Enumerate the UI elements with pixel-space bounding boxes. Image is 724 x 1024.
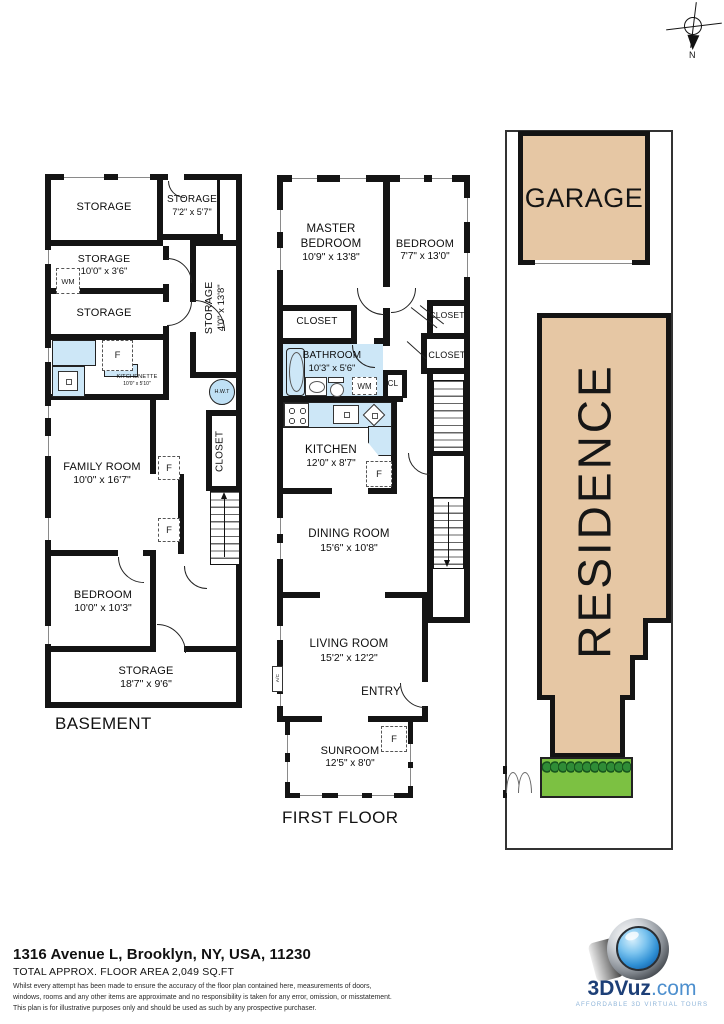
room-label: BATHROOM10'3" x 5'6" <box>287 350 377 375</box>
garage-footprint: GARAGE <box>518 131 650 265</box>
disclaimer-line: This plan is for illustrative purposes o… <box>13 1003 588 1014</box>
wall <box>402 370 407 398</box>
room-label: BEDROOM10'0" x 10'3" <box>50 588 156 616</box>
stair-down-arrow-icon <box>444 560 450 567</box>
compass-north-label: N <box>689 50 696 60</box>
stair-direction-line <box>448 502 449 562</box>
window <box>338 793 362 798</box>
room-label: CLOSET <box>427 310 467 321</box>
wall <box>464 175 470 623</box>
window <box>277 626 283 640</box>
water-heater-label: H.W.T <box>215 389 230 395</box>
brand-logo: 3DVuz.com AFFORDABLE 3D VIRTUAL TOURS <box>572 916 712 1012</box>
fixture-box: F <box>366 461 392 487</box>
wall <box>427 617 470 623</box>
stove <box>284 403 309 427</box>
wall <box>283 338 357 344</box>
sink-drain-icon <box>344 412 350 418</box>
floor-plan-page: N <box>0 0 724 1024</box>
disclaimer: Whilst every attempt has been made to en… <box>13 981 588 1015</box>
window <box>277 543 283 559</box>
wall <box>277 592 320 598</box>
wall <box>283 305 357 311</box>
window <box>277 518 283 534</box>
disclaimer-line: Whilst every attempt has been made to en… <box>13 981 588 992</box>
first-floor-title: FIRST FLOOR <box>282 808 399 828</box>
window <box>400 175 424 182</box>
fixture-label: F <box>391 734 397 745</box>
window <box>300 793 322 798</box>
residence-footprint: RESIDENCE <box>537 313 671 758</box>
window <box>45 626 51 644</box>
water-heater: H.W.T <box>209 379 235 405</box>
window <box>464 253 470 277</box>
room-label: BEDROOM7'7" x 13'0" <box>390 237 460 264</box>
kitchen-counter <box>368 426 392 456</box>
window <box>45 348 51 362</box>
room-label: STORAGE7'2" x 5'7" <box>162 194 222 218</box>
wall <box>433 452 470 456</box>
room-label: CLOSET <box>215 406 228 496</box>
wall <box>45 702 242 708</box>
wall <box>385 592 427 598</box>
window <box>464 198 470 222</box>
wall <box>427 300 470 306</box>
room-label: STORAGE <box>51 306 157 320</box>
wall <box>277 488 332 494</box>
wall <box>236 174 242 708</box>
kitchenette-counter <box>52 340 96 366</box>
stair-direction-line <box>224 499 225 557</box>
gate-post <box>503 766 507 774</box>
wall <box>190 372 242 378</box>
wall <box>184 646 242 652</box>
wall <box>351 305 357 344</box>
room-label: FAMILY ROOM10'0" x 16'7" <box>50 460 154 488</box>
room-label: DINING ROOM15'6" x 10'8" <box>300 527 398 555</box>
room-label: LIVING ROOM15'2" x 12'2" <box>301 637 397 665</box>
wall <box>368 716 427 722</box>
hedge-row-icon <box>542 759 631 776</box>
residence-label: RESIDENCE <box>537 321 653 701</box>
door-arc <box>168 164 202 198</box>
window <box>285 735 290 753</box>
room-label: CLOSET <box>283 316 351 329</box>
window <box>277 248 283 270</box>
wall <box>184 174 242 180</box>
basement-title: BASEMENT <box>55 714 152 734</box>
room-label: CL <box>384 379 402 389</box>
compass-rose: N <box>660 0 724 66</box>
sink-bowl-icon <box>309 381 325 393</box>
fixture-label: F <box>376 469 382 480</box>
compass-circle-icon <box>684 17 702 35</box>
fixture-box: F <box>158 518 180 542</box>
garage-label: GARAGE <box>525 183 644 214</box>
fixture-label: F <box>166 525 172 536</box>
fixture-label: F <box>166 463 172 474</box>
room-label: MASTER BEDROOM10'9" x 13'8" <box>292 222 370 265</box>
wall <box>190 246 196 302</box>
property-address: 1316 Avenue L, Brooklyn, NY, USA, 11230 <box>13 946 311 963</box>
brand-name: 3DVuz.com <box>572 977 712 1001</box>
room-label: CLOSET <box>425 350 469 362</box>
wall <box>178 474 184 554</box>
window <box>432 175 452 182</box>
window <box>45 406 51 418</box>
washer-label: WM <box>357 382 371 391</box>
sink-drain-icon <box>372 413 378 419</box>
wall <box>163 246 169 260</box>
window <box>64 174 104 180</box>
wall <box>383 175 390 287</box>
room-label: KITCHENETTE10'0" x 5'10" <box>108 374 166 388</box>
window <box>408 768 413 786</box>
wall <box>383 308 390 346</box>
room-label: ENTRY <box>358 685 404 700</box>
disclaimer-line: windows, rooms and any other items are a… <box>13 992 588 1003</box>
staircase <box>433 380 464 452</box>
window <box>277 210 283 232</box>
wall <box>51 646 156 652</box>
brand-suffix: .com <box>651 977 697 1000</box>
staircase <box>210 491 240 565</box>
fixture-box: F <box>102 340 133 371</box>
brand-tagline: AFFORDABLE 3D VIRTUAL TOURS <box>572 1001 712 1008</box>
wall <box>368 488 397 494</box>
wall <box>277 716 322 722</box>
window <box>118 174 150 180</box>
ac-label: A/C <box>275 658 281 698</box>
wall <box>374 338 383 344</box>
window <box>285 762 290 782</box>
wall <box>51 550 118 556</box>
toilet-bowl-icon <box>330 383 344 397</box>
window <box>45 518 51 540</box>
wall <box>421 333 470 339</box>
fixture-box: F <box>158 456 180 480</box>
wall <box>163 284 169 302</box>
room-label: STORAGE <box>54 200 154 214</box>
room-label: KITCHEN12'0" x 8'7" <box>299 443 363 471</box>
wall <box>51 240 163 246</box>
room-label: SUNROOM12'5" x 8'0" <box>306 744 394 771</box>
compass-needle-icon <box>687 35 700 51</box>
room-label: STORAGE10'0" x 3'6" <box>51 253 157 279</box>
window <box>372 793 394 798</box>
wall <box>190 240 242 246</box>
garage-door <box>535 260 632 266</box>
window <box>45 436 51 456</box>
room-label: STORAGE4'0" x 13'8" <box>203 258 229 358</box>
washer-box: WM <box>352 377 377 395</box>
wall <box>206 410 212 490</box>
window <box>408 744 413 762</box>
sink-drain-icon <box>66 379 72 385</box>
room-label: STORAGE18'7" x 9'6" <box>60 664 232 692</box>
window <box>340 175 366 182</box>
total-floor-area: TOTAL APPROX. FLOOR AREA 2,049 SQ.FT <box>13 966 234 978</box>
wall <box>285 722 290 798</box>
window <box>292 175 317 182</box>
fixture-label: F <box>115 350 121 361</box>
